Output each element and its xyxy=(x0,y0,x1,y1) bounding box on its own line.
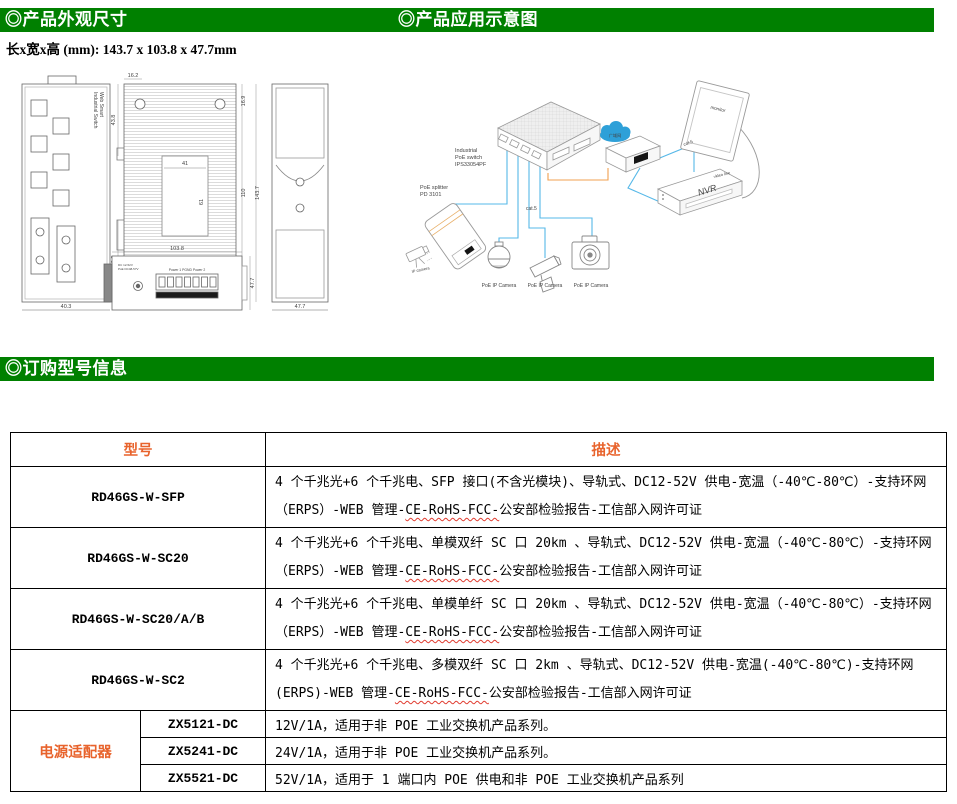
adapter-model-name: ZX5121-DC xyxy=(141,711,266,738)
desc-text: 公安部检验报告-工信部入网许可证 xyxy=(489,686,692,701)
model-name: RD46GS-W-SC20 xyxy=(11,528,266,589)
bottom-view xyxy=(104,252,250,310)
splitter-label-line2: PD 3101 xyxy=(420,192,441,198)
model-description: 4 个千兆光+6 个千兆电、SFP 接口(不含光模块)、导轨式、DC12-52V… xyxy=(266,467,947,528)
dslr-camera xyxy=(572,236,609,269)
splitter-camera-links xyxy=(425,252,432,261)
switch-label-line2: PoE switch xyxy=(455,155,482,161)
wan-cloud: 广域网 xyxy=(600,121,631,142)
dim-inner-width: 41 xyxy=(182,161,188,167)
adapter-description: 24V/1A，适用于非 POE 工业交换机产品系列。 xyxy=(266,738,947,765)
desc-text-spellcheck: CE-RoHS-FCC- xyxy=(405,625,499,640)
monitor: monitor xyxy=(680,81,749,162)
desc-text: 公安部检验报告-工信部入网许可证 xyxy=(499,625,702,640)
splitter-label-line1: PoE splitter xyxy=(420,185,448,191)
application-diagram: Industrial PoE switch IPS33054PF 广域网 mon… xyxy=(388,76,800,316)
poe-camera-label-3: PoE IP Camera xyxy=(574,283,609,289)
poe-switch xyxy=(498,102,600,170)
table-row-sc20: RD46GS-W-SC20 4 个千兆光+6 个千兆电、单模双纤 SC 口 20… xyxy=(11,528,947,589)
column-header-model: 型号 xyxy=(11,433,266,467)
dim-right-top: 16.9 xyxy=(241,96,247,107)
poe-camera-label-1: PoE IP Camera xyxy=(482,283,517,289)
section-title-ordering: ◎订购型号信息 xyxy=(5,357,128,381)
model-name: RD46GS-W-SFP xyxy=(11,467,266,528)
desc-text: 公安部检验报告-工信部入网许可证 xyxy=(499,503,702,518)
dim-back-width: 47.7 xyxy=(295,304,306,310)
adapter-model-name: ZX5521-DC xyxy=(141,765,266,792)
dim-side-left-upper: 43.8 xyxy=(111,115,117,126)
dim-side-top: 16.2 xyxy=(128,73,139,79)
switch-label-line3: IPS33054PF xyxy=(455,162,487,168)
model-name: RD46GS-W-SC20/A/B xyxy=(11,589,266,650)
dim-bottom-width: 103.8 xyxy=(170,246,184,252)
model-description: 4 个千兆光+6 个千兆电、多模双纤 SC 口 2km 、导轨式、DC12-52… xyxy=(266,650,947,711)
table-row-sfp: RD46GS-W-SFP 4 个千兆光+6 个千兆电、SFP 接口(不含光模块)… xyxy=(11,467,947,528)
dim-bottom-height: 47.7 xyxy=(250,278,256,289)
switch-label-line1: Industrial xyxy=(455,148,477,154)
table-row-sc20ab: RD46GS-W-SC20/A/B 4 个千兆光+6 个千兆电、单模单纤 SC … xyxy=(11,589,947,650)
section-header-bar-top: ◎产品外观尺寸 ◎产品应用示意图 xyxy=(0,8,934,32)
ordering-table: 型号 描述 RD46GS-W-SFP 4 个千兆光+6 个千兆电、SFP 接口(… xyxy=(10,432,947,792)
table-row-adapter-24v: ZX5241-DC 24V/1A，适用于非 POE 工业交换机产品系列。 xyxy=(11,738,947,765)
dimensions-text: 长x宽x高 (mm): 143.7 x 103.8 x 47.7mm xyxy=(6,38,237,58)
adapter-description: 12V/1A，适用于非 POE 工业交换机产品系列。 xyxy=(266,711,947,738)
model-description: 4 个千兆光+6 个千兆电、单模单纤 SC 口 20km 、导轨式、DC12-5… xyxy=(266,589,947,650)
column-header-desc: 描述 xyxy=(266,433,947,467)
section-title-application: ◎产品应用示意图 xyxy=(398,8,538,32)
adapter-group-label: 电源适配器 xyxy=(11,711,141,792)
poe-splitter xyxy=(423,202,487,271)
supply-label-2: PoE DC48-57V xyxy=(118,267,139,271)
table-row-adapter-12v: 电源适配器 ZX5121-DC 12V/1A，适用于非 POE 工业交换机产品系… xyxy=(11,711,947,738)
cat5-left-label: cat.5 xyxy=(526,206,537,212)
terminal-labels: Power 1 PGND Power 2 xyxy=(169,268,206,272)
power-line xyxy=(548,168,608,180)
desc-text: 公安部检验报告-工信部入网许可证 xyxy=(499,564,702,579)
desc-text-spellcheck: CE-RoHS-FCC- xyxy=(405,564,499,579)
model-name: RD46GS-W-SC2 xyxy=(11,650,266,711)
dim-front-width: 40.3 xyxy=(61,304,72,310)
desc-text-spellcheck: CE-RoHS-FCC- xyxy=(405,503,499,518)
dim-right-mid: 110 xyxy=(241,189,247,198)
dim-inner-height: 61 xyxy=(199,199,205,205)
dim-total-height: 143.7 xyxy=(255,186,261,200)
cloud-label: 广域网 xyxy=(609,132,622,139)
adapter-model-name: ZX5241-DC xyxy=(141,738,266,765)
adapter-description: 52V/1A，适用于 1 端口内 POE 供电和非 POE 工业交换机产品系列 xyxy=(266,765,947,792)
model-description: 4 个千兆光+6 个千兆电、单模双纤 SC 口 20km 、导轨式、DC12-5… xyxy=(266,528,947,589)
desc-text-spellcheck: CE-RoHS-FCC- xyxy=(395,686,489,701)
table-header-row: 型号 描述 xyxy=(11,433,947,467)
front-panel-label-line2: Industrial Switch xyxy=(92,92,98,129)
poe-camera-label-2: PoE IP Camera xyxy=(528,283,563,289)
ip-camera-label: IP camera xyxy=(411,265,431,274)
technical-drawing: Web Smart Industrial Switch 40.3 16.2 43… xyxy=(4,70,344,334)
table-row-sc2: RD46GS-W-SC2 4 个千兆光+6 个千兆电、多模双纤 SC 口 2km… xyxy=(11,650,947,711)
table-row-adapter-52v: ZX5521-DC 52V/1A，适用于 1 端口内 POE 供电和非 POE … xyxy=(11,765,947,792)
section-header-bar-ordering: ◎订购型号信息 xyxy=(0,357,934,381)
dome-camera xyxy=(488,242,510,268)
section-title-appearance: ◎产品外观尺寸 xyxy=(5,8,128,32)
back-view xyxy=(272,84,328,310)
